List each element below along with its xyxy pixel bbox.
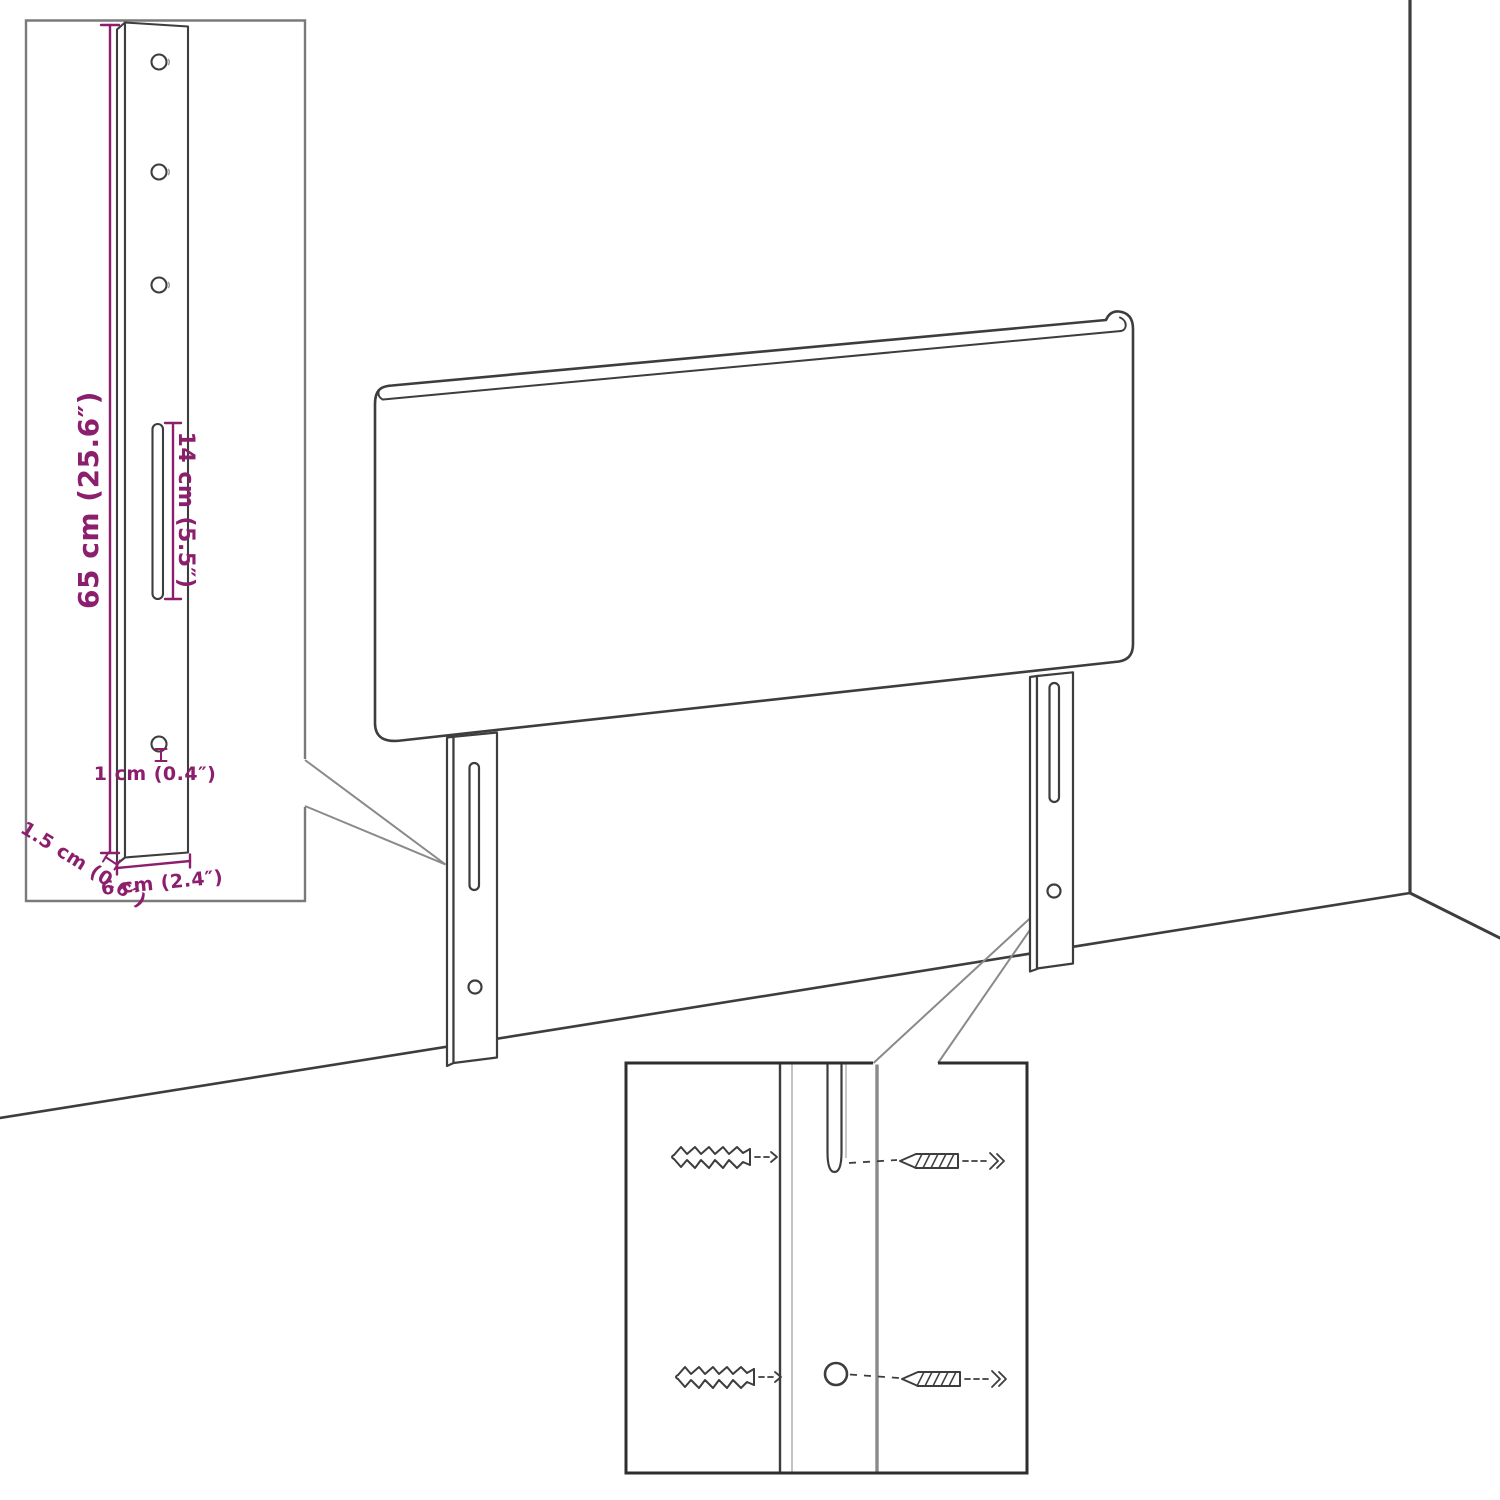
slot-to-screw-dashed-line <box>849 1160 897 1163</box>
wall-floor-right-line <box>1410 893 1500 938</box>
closeup-slot <box>828 1065 842 1173</box>
inset-leg-slot <box>153 424 164 599</box>
callout-leader-lines <box>305 760 1052 1063</box>
diagram-stage: 65 cm (25.6″) 14 cm (5.5″) 1 cm (0.4″) 6… <box>0 0 1500 1500</box>
leg-height-label: 65 cm (25.6″) <box>72 391 105 609</box>
wall-plug-bottom-icon <box>676 1367 781 1388</box>
inset-leg-hole-1 <box>152 55 167 70</box>
diagram-canvas: 65 cm (25.6″) 14 cm (5.5″) 1 cm (0.4″) 6… <box>0 0 1500 1500</box>
slot-length-label: 14 cm (5.5″) <box>173 432 198 589</box>
hole-to-screw-dashed-line <box>850 1375 899 1379</box>
headboard-panel <box>375 311 1133 741</box>
inset-leg-hole-3 <box>152 278 167 293</box>
right-mounting-leg <box>1030 672 1073 971</box>
right-leg-slot <box>1050 683 1060 802</box>
screw-bottom-icon <box>902 1371 1006 1387</box>
left-mounting-leg <box>447 733 497 1067</box>
hardware-inset-callout-wedge <box>874 898 1053 1063</box>
leg-inset-callout-wedge <box>305 760 446 865</box>
wall-floor-left-line <box>0 893 1410 1118</box>
dim-line-6cm <box>117 861 190 868</box>
left-leg-screw-hole <box>469 981 482 994</box>
left-leg-slot <box>470 763 480 890</box>
screw-top-icon <box>900 1153 1004 1169</box>
dim-line-1-5cm <box>106 857 118 865</box>
inset-leg-side-face <box>117 23 125 865</box>
right-leg-screw-hole <box>1048 885 1061 898</box>
closeup-hole <box>825 1363 847 1385</box>
hole-diameter-label: 1 cm (0.4″) <box>94 763 217 785</box>
headboard-outline <box>375 311 1133 741</box>
leg-dimension-inset: 65 cm (25.6″) 14 cm (5.5″) 1 cm (0.4″) 6… <box>17 21 305 913</box>
mounting-hardware-inset <box>626 1063 1027 1473</box>
wall-plug-top-icon <box>672 1147 777 1168</box>
inset-leg-hole-2 <box>152 165 167 180</box>
inset-leg-closeup <box>780 1065 877 1472</box>
